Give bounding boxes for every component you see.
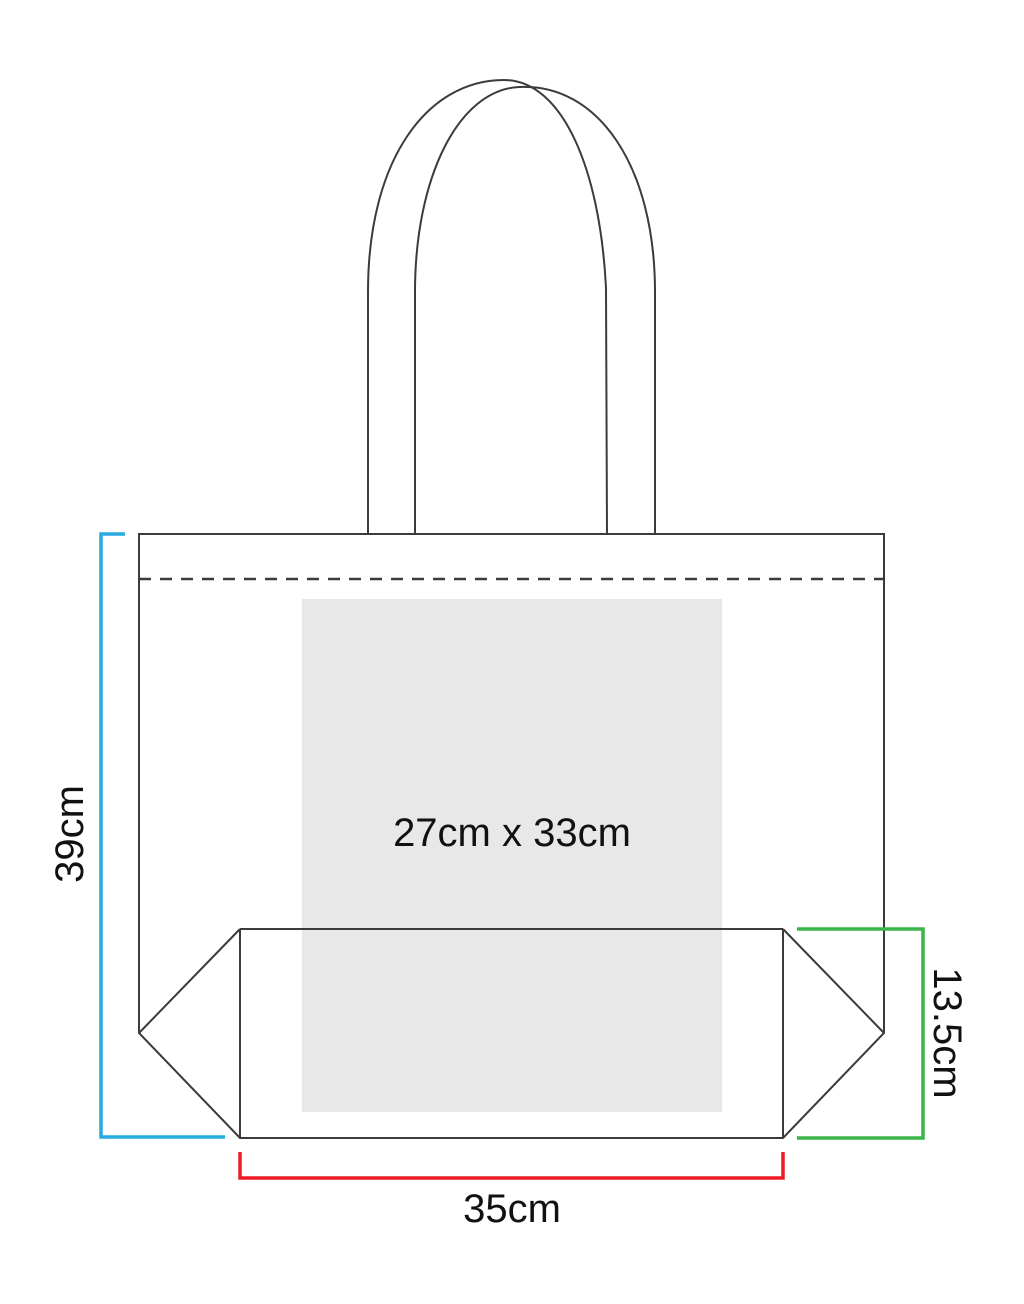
- height-bracket: [101, 534, 225, 1137]
- gusset-bracket: [797, 929, 923, 1138]
- tote-bag-diagram: 39cm 35cm 13.5cm 27cm x 33cm: [0, 0, 1024, 1304]
- print-area-label: 27cm x 33cm: [393, 811, 631, 855]
- bag-width-label: 35cm: [463, 1187, 561, 1231]
- handle-strap-curve-right: [415, 87, 655, 534]
- bag-height-label: 39cm: [48, 785, 92, 883]
- tote-bag-diagram-canvas: 39cm 35cm 13.5cm 27cm x 33cm: [0, 0, 1024, 1304]
- gusset-triangle-diagonal-left: [139, 929, 240, 1033]
- print-area-rect: [302, 599, 722, 1112]
- gusset-triangle-diagonal-right: [783, 929, 884, 1033]
- handle-strap-curve-left: [368, 80, 607, 534]
- width-bracket: [240, 1152, 783, 1178]
- gusset-depth-label: 13.5cm: [925, 967, 969, 1098]
